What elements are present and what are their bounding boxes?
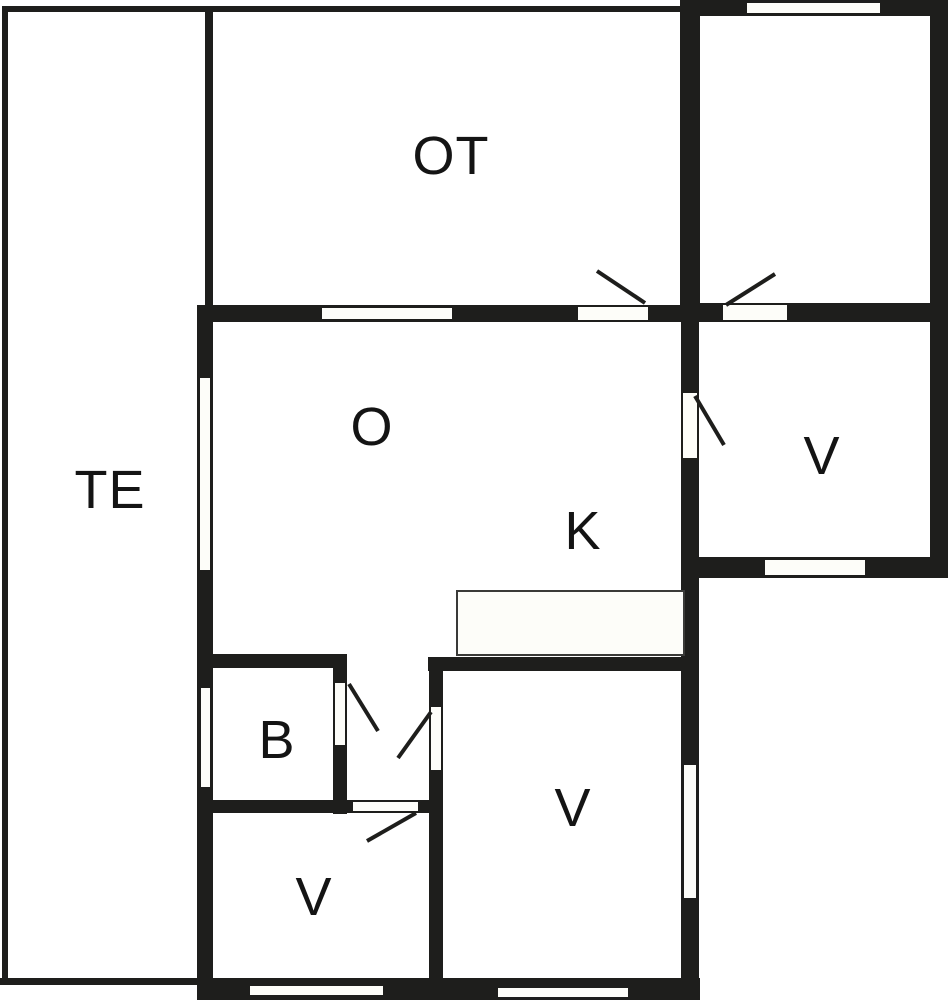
window-top-right-room (747, 0, 880, 16)
hall-vertical-wall (429, 657, 443, 978)
terrace-left-wall (2, 6, 8, 985)
room-label-b: B (258, 713, 295, 767)
door-swing-line (695, 396, 724, 445)
kitchen-bottom-wall (428, 657, 699, 671)
window-b-left (198, 688, 213, 787)
door-swing-line (349, 684, 378, 731)
window-center-v-right (681, 765, 699, 898)
terrace-bottom-wall (0, 978, 199, 985)
room-label-v-left: V (295, 870, 332, 924)
floor-plan: TE OT O K B V V V (0, 0, 948, 1000)
room-label-o: O (350, 400, 393, 454)
door-b-room-opening (333, 683, 347, 745)
window-right-v-room (765, 557, 865, 578)
door-right-v-opening (681, 393, 699, 458)
house-right-wall (930, 0, 948, 578)
room-label-ot: OT (413, 129, 490, 183)
door-bottom-left-v-opening (353, 800, 418, 813)
door-swing-line (726, 274, 775, 305)
room-label-te: TE (74, 463, 145, 517)
door-ot-opening (578, 305, 648, 322)
window-bottom-center-v (498, 985, 628, 1000)
door-swing-line (398, 712, 431, 758)
window-bottom-left-v (250, 983, 383, 998)
door-top-right-room-opening (723, 303, 787, 322)
ot-right-divider-wall (680, 0, 700, 322)
door-center-v-opening (429, 707, 443, 770)
kitchen-counter (456, 590, 685, 656)
ot-left-wall (205, 6, 213, 308)
door-swing-line (367, 813, 416, 841)
door-swing-line (597, 271, 645, 303)
room-label-v-center: V (554, 781, 591, 835)
window-o-left (197, 378, 213, 570)
terrace-top-wall (2, 6, 686, 12)
window-o-top (322, 305, 452, 322)
room-label-k: K (564, 504, 601, 558)
room-label-v-right: V (803, 429, 840, 483)
b-room-top-wall (213, 654, 347, 668)
